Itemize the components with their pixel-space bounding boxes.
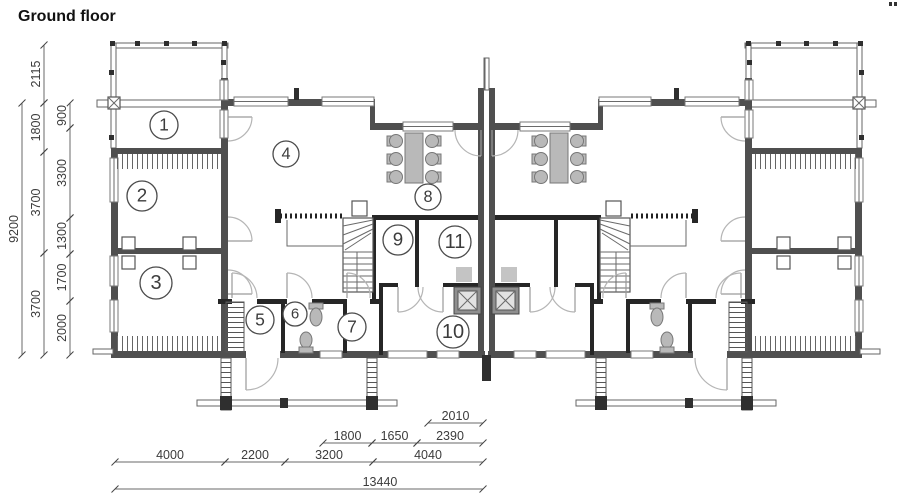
dim-label-1300: 1300 xyxy=(55,222,69,250)
room-label-5: 5 xyxy=(246,306,274,334)
dim-label-2115: 2115 xyxy=(29,61,43,88)
dim-label-1650: 1650 xyxy=(381,429,409,443)
svg-text:6: 6 xyxy=(291,306,299,323)
dim-label-2390: 2390 xyxy=(436,429,464,443)
dim-label-9200: 9200 xyxy=(7,215,21,243)
room-label-8: 8 xyxy=(415,184,441,210)
dim-label-2200: 2200 xyxy=(241,448,269,462)
dim-label-900: 900 xyxy=(55,105,69,126)
dim-label-2010: 2010 xyxy=(442,409,470,423)
dwelling-left xyxy=(93,41,489,410)
room-label-9: 9 xyxy=(383,225,413,255)
bottom-dimension-chains: 2010180016502390400022003200404013440 xyxy=(112,409,487,493)
dim-label-1700: 1700 xyxy=(55,264,69,292)
room-label-10: 10 xyxy=(437,316,469,348)
dim-label-1800: 1800 xyxy=(29,114,43,142)
svg-text:8: 8 xyxy=(423,188,432,206)
svg-text:5: 5 xyxy=(255,309,265,329)
dim-label-1800: 1800 xyxy=(334,429,362,443)
dim-label-3200: 3200 xyxy=(315,448,343,462)
dim-label-3700: 3700 xyxy=(29,189,43,217)
room-label-2: 2 xyxy=(127,181,157,211)
dim-label-3700: 3700 xyxy=(29,290,43,318)
dim-label-13440: 13440 xyxy=(363,475,398,489)
svg-text:10: 10 xyxy=(442,321,464,343)
svg-text:3: 3 xyxy=(150,272,161,294)
room-label-11: 11 xyxy=(439,226,471,258)
room-label-4: 4 xyxy=(273,141,299,167)
svg-text:4: 4 xyxy=(281,145,290,163)
svg-text:11: 11 xyxy=(445,231,466,253)
cropped-corner-mark xyxy=(889,2,897,6)
room-label-7: 7 xyxy=(338,313,366,341)
svg-text:7: 7 xyxy=(347,316,357,336)
page-title: Ground floor xyxy=(18,8,116,26)
dim-label-4040: 4040 xyxy=(414,448,442,462)
room-label-6: 6 xyxy=(283,302,307,326)
svg-text:2: 2 xyxy=(137,185,147,206)
dim-label-2000: 2000 xyxy=(55,314,69,342)
dim-label-3300: 3300 xyxy=(55,159,69,187)
dwelling-right xyxy=(484,41,880,410)
floor-plan-page: Ground floor xyxy=(0,0,900,500)
floor-plan-drawing: 1234567891011 92002115180037003700900330… xyxy=(0,0,900,500)
svg-text:1: 1 xyxy=(159,114,169,134)
svg-text:9: 9 xyxy=(393,229,403,250)
dim-label-4000: 4000 xyxy=(156,448,184,462)
room-label-3: 3 xyxy=(140,267,172,299)
left-dimension-chains: 920021151800370037009003300130017002000 xyxy=(7,42,74,359)
room-label-1: 1 xyxy=(150,111,178,139)
